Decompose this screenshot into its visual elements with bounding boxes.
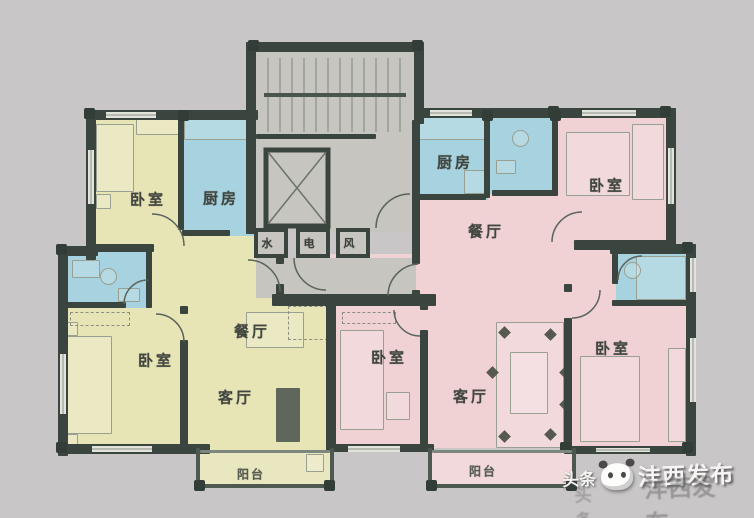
bed	[62, 336, 112, 434]
wall	[86, 244, 154, 252]
wall-post	[426, 480, 437, 491]
room-core-stairwell	[252, 48, 418, 232]
kitchen-counter	[418, 116, 486, 140]
window	[106, 112, 156, 118]
label-left-balcony: 阳台	[237, 466, 265, 483]
closet-dashed	[70, 312, 130, 326]
washbasin	[496, 160, 516, 174]
wall	[412, 120, 420, 264]
label-right-living: 客厅	[453, 386, 489, 407]
wall-post	[550, 110, 561, 121]
label-bedroom-middle: 卧室	[371, 347, 407, 368]
toilet	[624, 262, 641, 279]
label-right-dining: 餐厅	[468, 221, 504, 242]
label-left-bedroom-top: 卧室	[130, 189, 166, 210]
balcony-wall	[428, 484, 576, 488]
window	[596, 448, 650, 452]
wall	[420, 302, 428, 310]
window	[690, 338, 696, 402]
wall	[564, 284, 572, 292]
wall-post	[194, 480, 205, 491]
wardrobe	[668, 348, 686, 442]
toilet	[512, 130, 529, 147]
toilet	[100, 268, 117, 285]
closet-dashed	[342, 312, 396, 324]
label-left-living: 客厅	[218, 387, 254, 408]
wall	[256, 134, 376, 139]
wall	[180, 340, 188, 448]
label-left-bedroom-lower: 卧室	[138, 350, 174, 371]
label-water-shaft: 水	[262, 235, 273, 251]
wall-post	[178, 110, 189, 121]
watermark-ghost: 头条 沣西发布	[574, 467, 736, 518]
wall	[564, 318, 572, 448]
label-electric-shaft: 电	[304, 235, 315, 251]
bathtub	[636, 256, 686, 300]
wall	[182, 230, 230, 236]
wall-post	[84, 108, 95, 119]
nightstand	[96, 194, 111, 209]
wall	[180, 306, 188, 314]
wall-post	[682, 442, 693, 453]
wardrobe	[136, 118, 182, 135]
balcony-door-track	[200, 450, 330, 453]
wall	[326, 296, 336, 448]
wall	[246, 42, 424, 52]
wall-post	[56, 244, 67, 255]
wall-post	[248, 40, 259, 51]
room-right-bathroom-1	[488, 114, 556, 194]
table-top	[510, 352, 548, 414]
window	[668, 148, 674, 204]
wall	[612, 250, 618, 284]
wall-post	[324, 480, 335, 491]
fridge	[464, 170, 486, 194]
label-right-balcony: 阳台	[469, 463, 497, 480]
bed	[96, 124, 134, 192]
label-bedroom-southeast: 卧室	[595, 338, 631, 359]
wall-post	[660, 106, 671, 117]
wall	[64, 302, 126, 308]
panda-logo-icon	[601, 462, 634, 490]
wall	[246, 42, 256, 234]
watermark: 头条 沣西发布 头条 沣西发布	[561, 455, 734, 495]
bed	[580, 356, 640, 442]
room-right-balcony	[430, 450, 574, 486]
wall	[492, 190, 556, 196]
closet-dashed	[288, 306, 328, 340]
label-left-dining: 餐厅	[234, 321, 270, 342]
wall	[58, 246, 68, 456]
watermark-account-ghost: 沣西发布	[644, 467, 736, 518]
bed	[340, 330, 384, 430]
wall	[484, 116, 490, 198]
wall	[146, 250, 152, 308]
washbasin	[118, 288, 140, 302]
label-right-kitchen: 厨房	[437, 152, 473, 173]
sink	[72, 260, 100, 278]
wardrobe	[632, 124, 664, 200]
window	[92, 446, 152, 452]
wall	[416, 194, 486, 200]
nightstand	[386, 392, 410, 420]
wall	[612, 300, 692, 306]
window	[60, 354, 66, 414]
window	[690, 258, 696, 292]
window	[582, 110, 636, 116]
tv-cabinet	[276, 388, 300, 442]
balcony-door-track	[432, 450, 572, 453]
label-air-shaft: 风	[344, 235, 355, 251]
wall-post	[482, 110, 493, 121]
wall	[178, 116, 184, 230]
wall-post	[412, 40, 423, 51]
wall	[552, 108, 558, 196]
wall	[272, 294, 436, 306]
window	[88, 150, 94, 204]
kitchen-counter	[184, 118, 252, 140]
label-bedroom-northeast: 卧室	[589, 175, 625, 196]
wall	[420, 330, 428, 448]
window	[348, 446, 400, 452]
balcony-wall	[196, 484, 334, 488]
watermark-prefix-ghost: 头条	[574, 480, 608, 518]
wall-post	[56, 442, 67, 453]
label-left-kitchen: 厨房	[203, 188, 239, 209]
balcony-unit	[306, 454, 324, 472]
wall-post	[682, 242, 693, 253]
floor-plan: 卧室 厨房 餐厅 卧室 客厅 阳台 厨房 餐厅 卧室 卧室 客厅 卧室 阳台 水…	[0, 0, 754, 518]
window	[430, 110, 472, 116]
